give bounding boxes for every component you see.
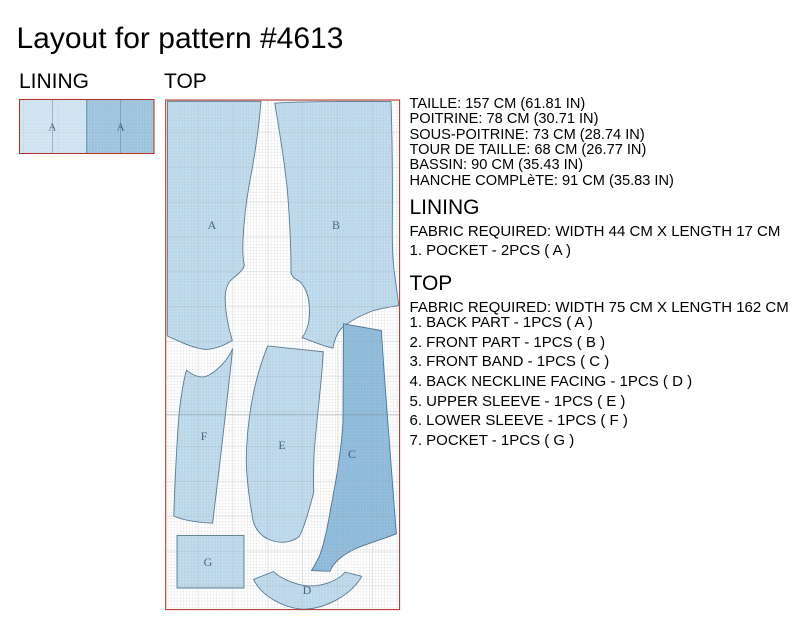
- svg-text:A: A: [48, 122, 56, 134]
- svg-text:C: C: [348, 447, 356, 461]
- svg-text:F: F: [201, 429, 208, 443]
- svg-text:D: D: [303, 583, 312, 597]
- svg-text:B: B: [332, 218, 340, 232]
- svg-text:E: E: [278, 438, 285, 452]
- svg-text:A: A: [208, 218, 217, 232]
- svg-text:A: A: [117, 122, 125, 134]
- svg-text:G: G: [204, 555, 213, 569]
